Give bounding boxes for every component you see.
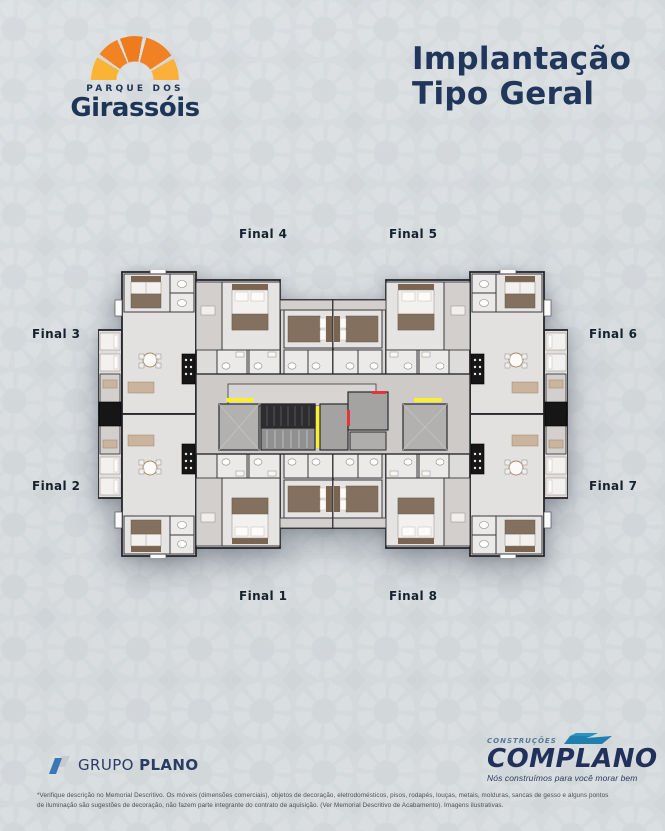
- grupo-plano-logo: GRUPO PLANO: [48, 755, 199, 775]
- disclaimer-line1: *Verifique descrição no Memorial Descrit…: [37, 791, 637, 801]
- plan-label-final1: Final 1: [239, 589, 287, 603]
- floor-plan-rendering: [98, 270, 568, 558]
- page-title: Implantação Tipo Geral: [412, 42, 631, 112]
- brand-logo: PARQUE DOS Girassóis: [55, 30, 215, 123]
- sunflower-arc-icon: [91, 36, 179, 80]
- complano-tagline: Nós construímos para você morar bem: [487, 773, 647, 783]
- plan-label-final2: Final 2: [32, 479, 80, 493]
- plan-label-final4: Final 4: [239, 227, 287, 241]
- grupo-plano-text: GRUPO PLANO: [78, 756, 199, 774]
- grupo-word: GRUPO: [78, 756, 134, 774]
- plan-label-final6: Final 6: [589, 327, 637, 341]
- page: { "brand": { "top_label": "PARQUE DOS", …: [0, 0, 665, 831]
- plan-label-final3: Final 3: [32, 327, 80, 341]
- page-title-line1: Implantação: [412, 42, 631, 77]
- page-title-line2: Tipo Geral: [412, 77, 631, 112]
- disclaimer: *Verifique descrição no Memorial Descrit…: [37, 791, 637, 810]
- plan-label-final8: Final 8: [389, 589, 437, 603]
- grupo-plano-slash-icon: [48, 755, 72, 775]
- complano-name: COMPLANO: [487, 747, 647, 771]
- plan-label-final5: Final 5: [389, 227, 437, 241]
- plano-word: PLANO: [139, 756, 198, 774]
- brand-name: Girassóis: [55, 93, 215, 123]
- plan-label-final7: Final 7: [589, 479, 637, 493]
- disclaimer-line2: de iluminação são sugestões de decoração…: [37, 801, 637, 811]
- complano-logo: CONSTRUÇÕES COMPLANO Nós construímos par…: [487, 733, 647, 783]
